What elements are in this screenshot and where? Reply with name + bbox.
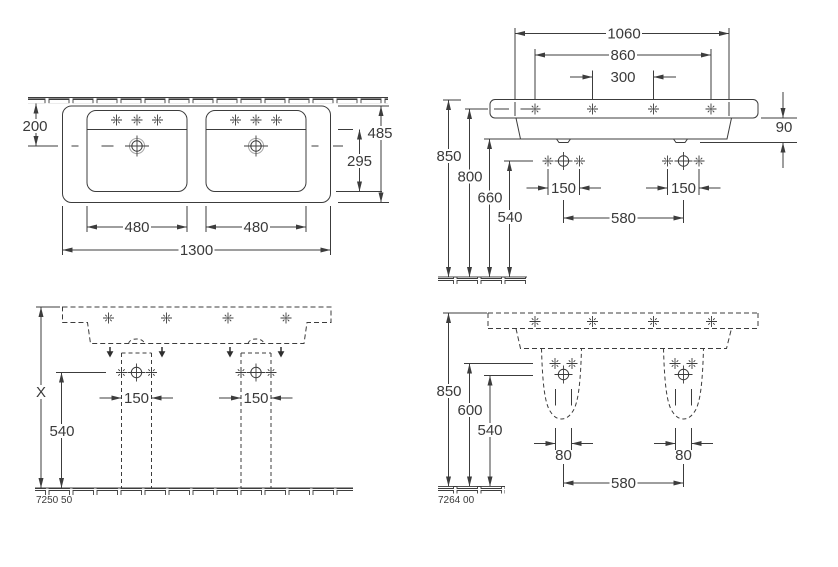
dim-connection-from-floor: 540: [48, 373, 106, 489]
technical-drawing: 200 485 295 480 480: [0, 0, 838, 567]
fixing-arrow-icon: [278, 347, 285, 358]
dim-rim-from-floor: 850: [435, 313, 487, 487]
connection-point-icon: [543, 156, 554, 167]
tap-hole-icon: [648, 104, 659, 115]
pedestal-front-view: X 540 150 150 7250 50: [34, 307, 353, 506]
tap-hole-icon: [706, 316, 717, 327]
pedestal-hidden-outline: [122, 353, 272, 488]
tap-hole-icon: [530, 104, 541, 115]
dim-pedestal-width-left: 150: [100, 390, 174, 407]
connection-point-icon: [266, 367, 277, 378]
connection-point-icon: [694, 156, 705, 167]
faucet-hole-icon: [152, 115, 163, 126]
tap-hole-icon: [223, 313, 234, 324]
dim-label-150-right: 150: [671, 180, 696, 197]
basin-outline: [63, 106, 354, 203]
dim-tap-inner-span: 300: [570, 69, 676, 100]
dim-overall-width: 1300: [63, 206, 331, 259]
dim-label-295: 295: [347, 153, 372, 170]
dim-label-1300: 1300: [180, 242, 213, 259]
faucet-hole-icon: [230, 115, 241, 126]
tap-hole-icon: [161, 313, 172, 324]
fixing-arrow-icon: [107, 347, 114, 358]
dim-label-1060: 1060: [607, 26, 640, 43]
pedestal-side-view: 850 600 540 80 80: [435, 313, 758, 506]
model-number-7250-50: 7250 50: [36, 495, 73, 506]
dim-label-540: 540: [49, 423, 74, 440]
connection-point-icon: [574, 156, 585, 167]
faucet-hole-icon: [111, 115, 122, 126]
dim-label-580: 580: [611, 210, 636, 227]
connection-point-icon: [670, 358, 681, 369]
connection-circle-icon: [555, 366, 573, 384]
dim-label-80-left: 80: [555, 447, 572, 464]
dim-label-480-right: 480: [243, 219, 268, 236]
dim-label-485: 485: [367, 125, 392, 142]
connection-circle-icon: [675, 152, 693, 170]
dim-label-80-right: 80: [675, 447, 692, 464]
connection-point-icon: [550, 358, 561, 369]
dim-label-850: 850: [436, 148, 461, 165]
model-number-7264-00: 7264 00: [438, 495, 475, 506]
dim-outlet-width-right: 80: [654, 428, 713, 464]
connection-circle-icon: [675, 366, 693, 384]
connection-circle-icon: [247, 364, 265, 382]
connection-point-icon: [687, 358, 698, 369]
connection-point-icon: [116, 367, 127, 378]
dim-label-150-left: 150: [124, 390, 149, 407]
drawing-canvas: 200 485 295 480 480: [0, 0, 838, 567]
connection-circle-icon: [128, 364, 146, 382]
tap-hole-icon: [530, 316, 541, 327]
wall-tile-band: [28, 98, 388, 104]
tap-hole-icon: [706, 104, 717, 115]
basin-hidden-outline: [488, 313, 758, 349]
drain-icon: [244, 136, 268, 157]
dim-label-540: 540: [497, 209, 522, 226]
drain-icon: [125, 136, 149, 157]
dim-basin-width-left: 480: [87, 206, 187, 236]
faucet-hole-icon: [132, 115, 143, 126]
connection-circle-icon: [555, 152, 573, 170]
dim-connection-pair-right: 150: [646, 169, 721, 197]
dim-label-540: 540: [477, 422, 502, 439]
connection-point-icon: [146, 367, 157, 378]
dim-label-200: 200: [22, 118, 47, 135]
connection-point-icon: [567, 358, 578, 369]
dim-underside-from-floor: 660: [476, 139, 520, 277]
dim-height-reference: X: [34, 307, 60, 488]
faucet-hole-icon: [271, 115, 282, 126]
dim-rim-thickness: 90: [700, 92, 797, 168]
floor-line: [438, 487, 505, 494]
floor-line: [35, 488, 353, 495]
dim-label-300: 300: [610, 69, 635, 86]
tap-hole-icon: [648, 316, 659, 327]
siphon-cover-hidden-outline: [542, 349, 704, 420]
tap-hole-icon: [587, 104, 598, 115]
dim-outlet-width-left: 80: [534, 428, 593, 464]
basin-body: [490, 100, 758, 143]
dim-wall-to-drain: 200: [21, 104, 58, 147]
faucet-hole-icon: [251, 115, 262, 126]
dim-label-90: 90: [776, 119, 793, 136]
dim-connection-from-floor: 540: [496, 161, 533, 277]
tap-hole-icon: [281, 313, 292, 324]
tap-hole-icon: [103, 313, 114, 324]
dim-basin-width-right: 480: [206, 206, 306, 236]
dim-connection-spread: 580: [564, 200, 684, 227]
dim-label-850: 850: [436, 383, 461, 400]
floor-line: [438, 277, 527, 284]
wall-mount-view: 1060 860 300 90 850: [435, 26, 797, 285]
dim-label-x: X: [36, 384, 46, 401]
basin-hidden-outline: [63, 307, 332, 344]
fixing-arrow-icon: [159, 347, 166, 358]
dim-label-150-right: 150: [243, 390, 268, 407]
dim-label-480-left: 480: [124, 219, 149, 236]
dim-label-800: 800: [457, 169, 482, 186]
dim-label-660: 660: [477, 190, 502, 207]
dim-label-600: 600: [457, 402, 482, 419]
plan-view: 200 485 295 480 480: [21, 98, 395, 260]
connection-point-icon: [236, 367, 247, 378]
fixing-arrow-icon: [227, 347, 234, 358]
dim-pedestal-width-right: 150: [219, 390, 293, 407]
dim-label-150-left: 150: [551, 180, 576, 197]
dim-label-860: 860: [610, 47, 635, 64]
tap-hole-icon: [587, 316, 598, 327]
dim-label-580: 580: [611, 475, 636, 492]
dim-lower-connection: 540: [476, 376, 533, 487]
dim-connection-pair-left: 150: [527, 169, 602, 197]
connection-point-icon: [662, 156, 673, 167]
dim-rim-from-floor: 850: [435, 100, 463, 277]
dim-outlet-spread: 580: [564, 464, 684, 492]
